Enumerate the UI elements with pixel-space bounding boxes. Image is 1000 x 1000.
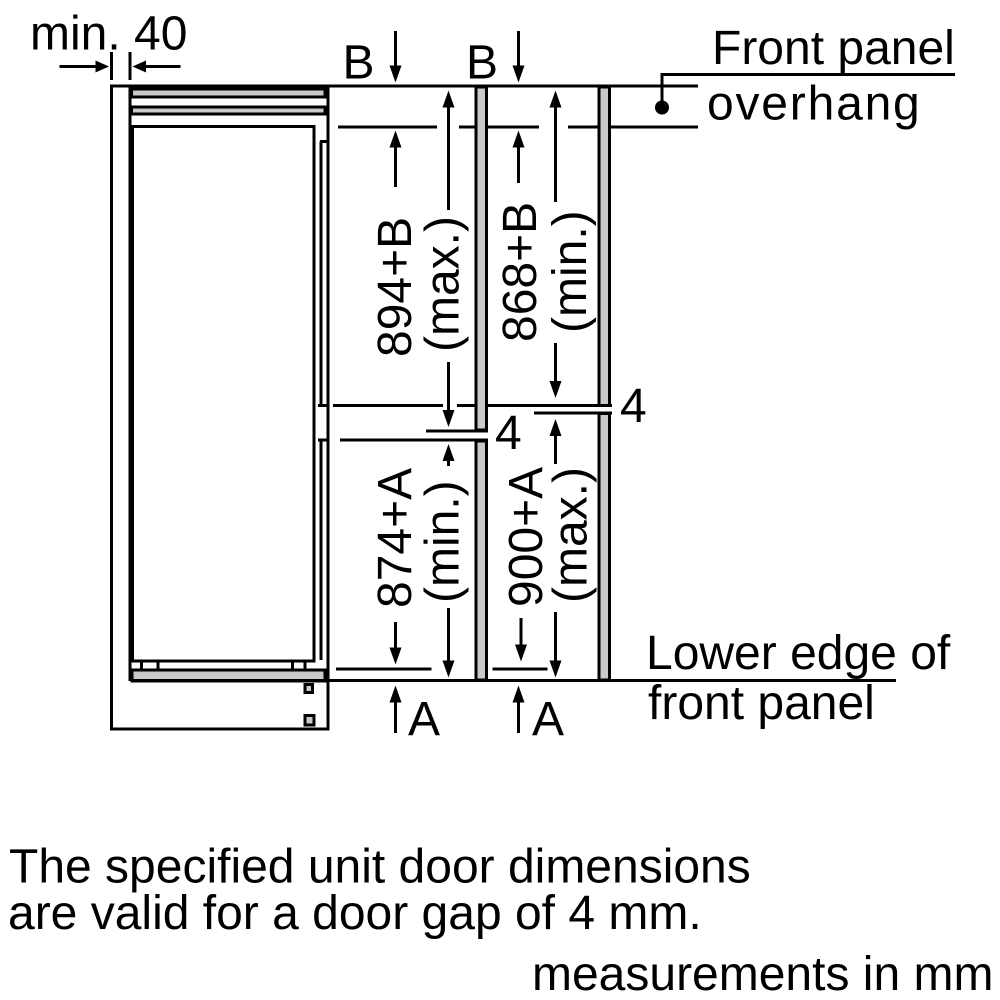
svg-text:(max.): (max.) — [417, 216, 470, 352]
svg-text:(min.): (min.) — [417, 480, 470, 603]
svg-text:min. 40: min. 40 — [30, 8, 187, 61]
svg-text:The specified unit door dimens: The specified unit door dimensions — [9, 841, 751, 894]
svg-text:894+B: 894+B — [369, 217, 422, 357]
svg-text:are valid for a door gap of 4: are valid for a door gap of 4 mm. — [8, 887, 702, 940]
svg-text:868+B: 868+B — [494, 202, 547, 342]
svg-text:A: A — [408, 693, 440, 746]
svg-text:4: 4 — [620, 380, 647, 433]
svg-text:B: B — [343, 37, 375, 90]
svg-text:Front panel: Front panel — [712, 22, 955, 75]
svg-text:A: A — [532, 693, 564, 746]
svg-text:874+A: 874+A — [369, 468, 422, 608]
svg-text:B: B — [466, 37, 498, 90]
svg-text:measurements in mm: measurements in mm — [532, 948, 993, 1000]
svg-text:overhang: overhang — [707, 78, 922, 131]
svg-text:(max.): (max.) — [545, 467, 598, 603]
svg-text:front panel: front panel — [648, 677, 875, 730]
svg-text:Lower edge of: Lower edge of — [646, 627, 951, 680]
svg-text:(min.): (min.) — [544, 210, 597, 333]
svg-text:4: 4 — [495, 407, 522, 460]
